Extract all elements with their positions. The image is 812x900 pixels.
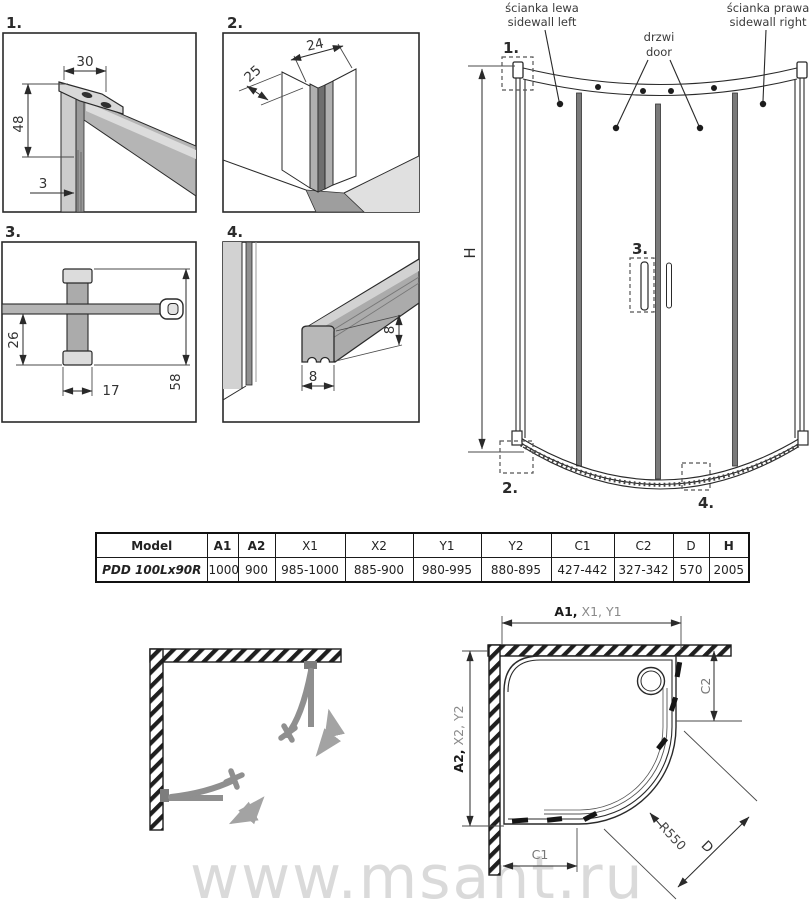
- dim-8-width: 8: [309, 369, 318, 385]
- detail-4-bottom-seal: 4. 8 8: [223, 223, 419, 422]
- dim-H: H: [461, 247, 479, 258]
- dim-C1: C1: [503, 828, 577, 872]
- dim-C2-label: C2: [698, 678, 713, 695]
- dim-X1-Y1: X1, Y1: [578, 604, 622, 619]
- dim-C2: C2: [676, 651, 742, 721]
- detail-2-label: 2.: [227, 14, 243, 32]
- dim-48: 48: [11, 115, 27, 132]
- dim-X2-Y2: X2, Y2: [451, 705, 466, 749]
- detail-1-label: 1.: [6, 14, 22, 32]
- sidewall-right-label-pl: ścianka prawa: [727, 1, 810, 15]
- wall-top: [488, 645, 731, 656]
- plan-door-swing: [150, 649, 341, 830]
- col-a2: A2: [238, 533, 275, 558]
- door-right: [281, 661, 330, 755]
- callout-4: 4.: [698, 494, 714, 512]
- callout-2: 2.: [502, 479, 518, 497]
- dim-8-height: 8: [382, 326, 398, 335]
- cell-d: 570: [673, 558, 709, 583]
- door-handle-left: [641, 262, 648, 310]
- dim-26: 26: [6, 331, 22, 348]
- dim-C1-label: C1: [532, 847, 549, 862]
- callout-3: 3.: [632, 240, 648, 258]
- detail-callouts: 1. 2. 3. 4.: [500, 39, 714, 512]
- plan-top-view: A1, X1, Y1 A2, X2, Y2 C2 C1 R550: [451, 604, 757, 899]
- dim-A2-X2-Y2: A2, X2, Y2: [451, 705, 466, 772]
- wall-top: [150, 649, 341, 662]
- col-c1: C1: [551, 533, 614, 558]
- spec-table-header-row: Model A1 A2 X1 X2 Y1 Y2 C1 C2 D H: [96, 533, 749, 558]
- detail-3-handle-section: 3. 26 17 58: [2, 223, 196, 422]
- door-label-pl: drzwi: [644, 30, 675, 44]
- dim-30: 30: [76, 54, 93, 70]
- detail-4-label: 4.: [227, 223, 243, 241]
- cell-c2: 327-342: [614, 558, 673, 583]
- spec-table: Model A1 A2 X1 X2 Y1 Y2 C1 C2 D H PDD 10…: [95, 532, 750, 583]
- sidewall-left-label-en: sidewall left: [508, 15, 577, 29]
- cell-x1: 985-1000: [275, 558, 345, 583]
- elevation-view: ścianka lewa sidewall left drzwi door śc…: [461, 1, 809, 512]
- callout-box-2: [500, 441, 533, 473]
- dim-R550-label: R550: [656, 819, 689, 853]
- dim-58: 58: [168, 373, 184, 390]
- sidewall-right-label-en: sidewall right: [729, 15, 807, 29]
- door-left: [160, 771, 263, 823]
- spec-table-data-row: PDD 100Lx90R 1000 900 985-1000 885-900 9…: [96, 558, 749, 583]
- detail-2-corner-profile: 2. 24 25: [223, 14, 419, 212]
- cell-c1: 427-442: [551, 558, 614, 583]
- door-label-en: door: [646, 45, 672, 59]
- shower-enclosure-drawing: 1. 30 48 3: [0, 0, 812, 900]
- callout-1: 1.: [503, 39, 519, 57]
- dim-3: 3: [39, 176, 48, 192]
- detail-1-top-bracket: 1. 30 48 3: [3, 14, 196, 212]
- wall-left: [150, 649, 163, 830]
- cell-model: PDD 100Lx90R: [96, 558, 207, 583]
- dim-radius: R550: [650, 813, 689, 853]
- cell-h: 2005: [709, 558, 749, 583]
- dim-A2: A2,: [451, 749, 466, 772]
- height-dimension: H: [461, 66, 524, 452]
- col-y1: Y1: [413, 533, 481, 558]
- cell-y2: 880-895: [481, 558, 551, 583]
- door-handle-right: [667, 263, 672, 308]
- cell-y1: 980-995: [413, 558, 481, 583]
- col-c2: C2: [614, 533, 673, 558]
- enclosure-frame: [512, 62, 808, 489]
- col-x1: X1: [275, 533, 345, 558]
- detail-3-label: 3.: [5, 223, 21, 241]
- dim-width-A1: A1, X1, Y1: [502, 604, 681, 650]
- dim-A1-X1-Y1: A1, X1, Y1: [554, 604, 621, 619]
- wall-left: [489, 645, 500, 875]
- col-y2: Y2: [481, 533, 551, 558]
- cell-x2: 885-900: [345, 558, 413, 583]
- col-h: H: [709, 533, 749, 558]
- col-a1: A1: [207, 533, 238, 558]
- technical-drawing-page: www.msant.ru 1.: [0, 0, 812, 900]
- cell-a1: 1000: [207, 558, 238, 583]
- drain-circle: [638, 668, 665, 695]
- sidewall-left-label-pl: ścianka lewa: [505, 1, 579, 15]
- cell-a2: 900: [238, 558, 275, 583]
- dim-A1: A1,: [554, 604, 577, 619]
- col-x2: X2: [345, 533, 413, 558]
- col-d: D: [673, 533, 709, 558]
- dim-17: 17: [102, 383, 119, 399]
- col-model: Model: [96, 533, 207, 558]
- dim-D-label: D: [698, 838, 717, 857]
